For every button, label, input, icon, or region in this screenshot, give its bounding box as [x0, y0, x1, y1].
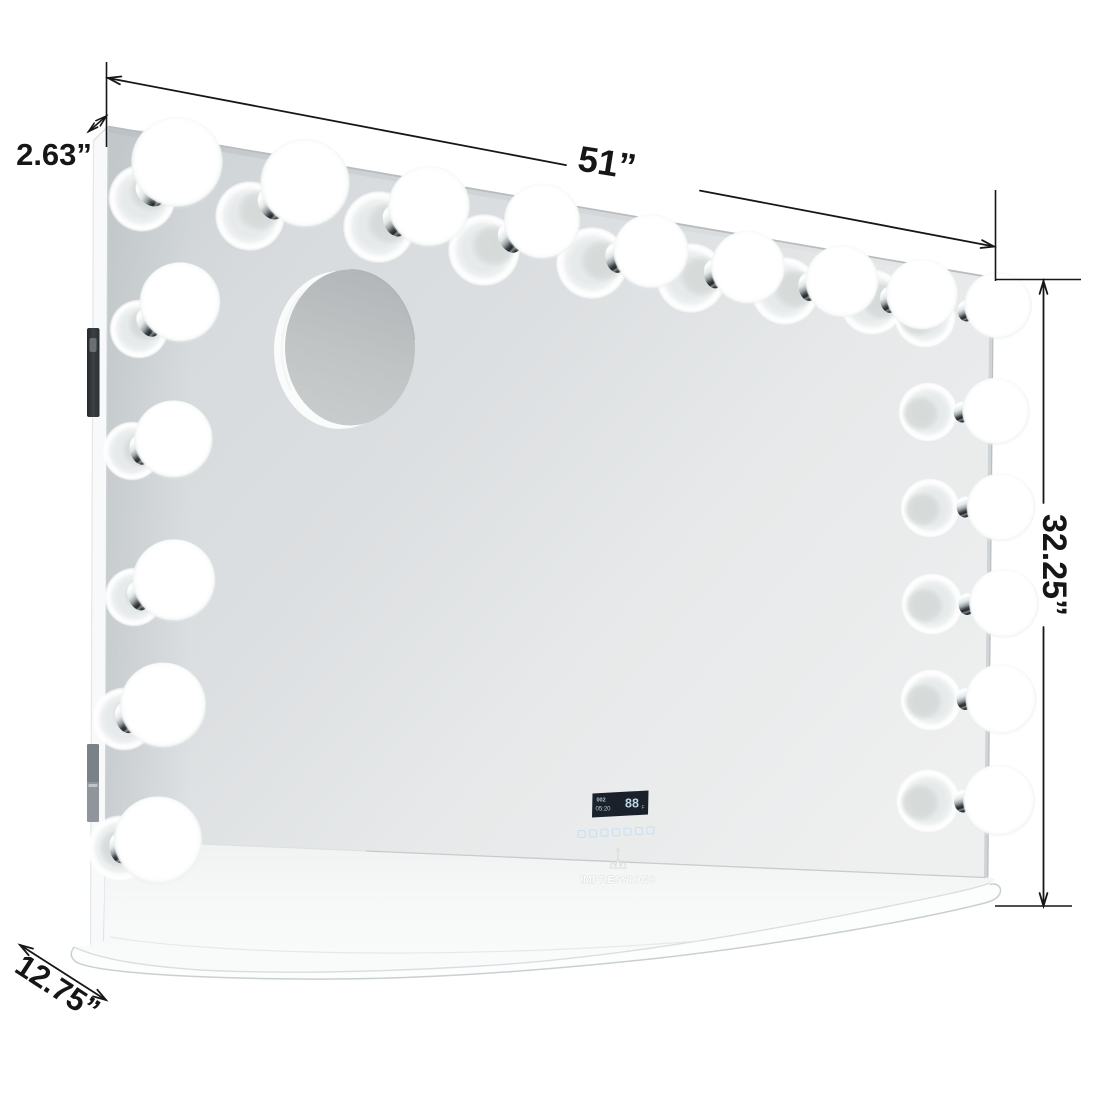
- svg-text:002: 002: [597, 798, 606, 804]
- svg-text:88: 88: [625, 797, 639, 811]
- svg-text:F: F: [642, 805, 645, 811]
- svg-text:IMPRESSIONS: IMPRESSIONS: [580, 874, 656, 886]
- svg-text:32.25”: 32.25”: [1035, 514, 1073, 616]
- svg-text:2.63”: 2.63”: [16, 137, 92, 172]
- svg-text:05:20: 05:20: [596, 807, 612, 813]
